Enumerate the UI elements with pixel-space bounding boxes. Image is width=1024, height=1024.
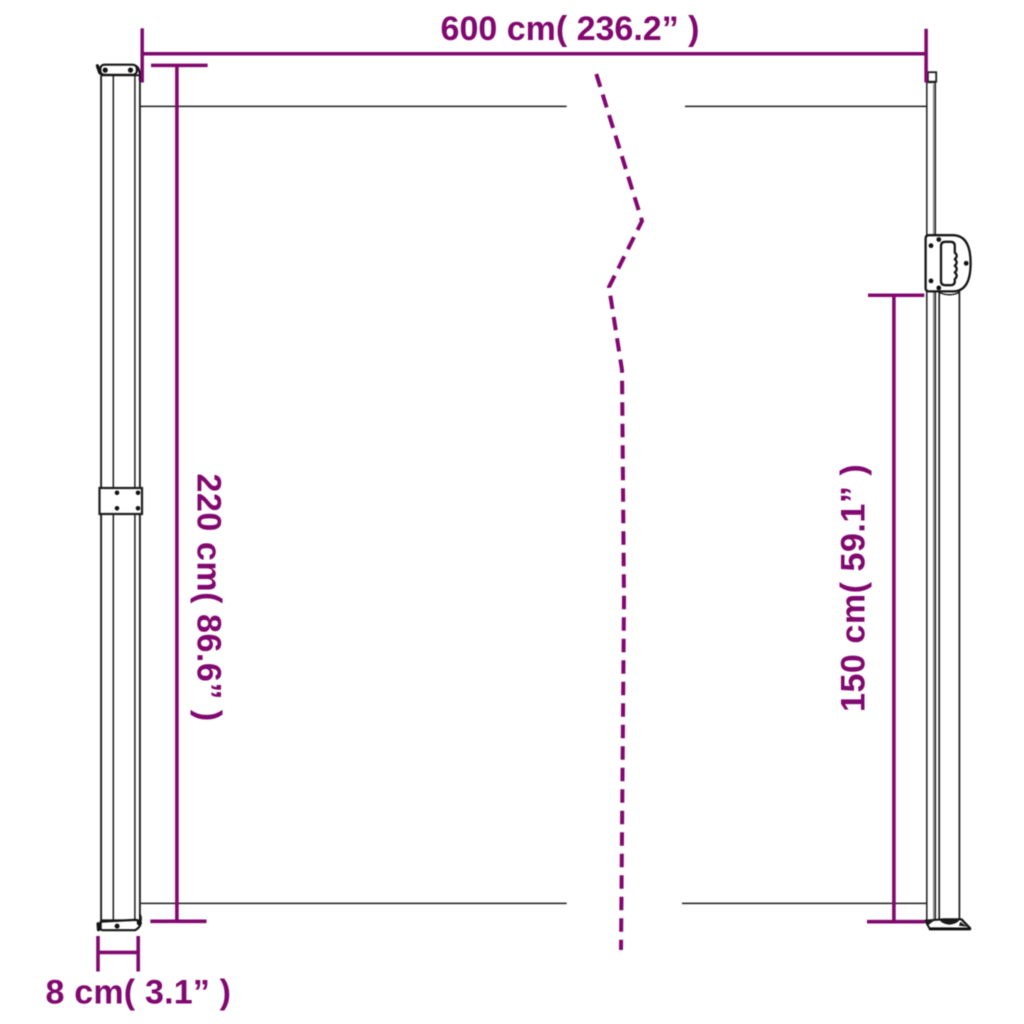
svg-text:600 cm( 236.2” ): 600 cm( 236.2” ) bbox=[441, 10, 700, 48]
svg-text:8 cm( 3.1” ): 8 cm( 3.1” ) bbox=[46, 974, 232, 1012]
svg-text:150 cm( 59.1” ): 150 cm( 59.1” ) bbox=[835, 464, 873, 712]
svg-text:220 cm( 86.6” ): 220 cm( 86.6” ) bbox=[190, 474, 228, 722]
